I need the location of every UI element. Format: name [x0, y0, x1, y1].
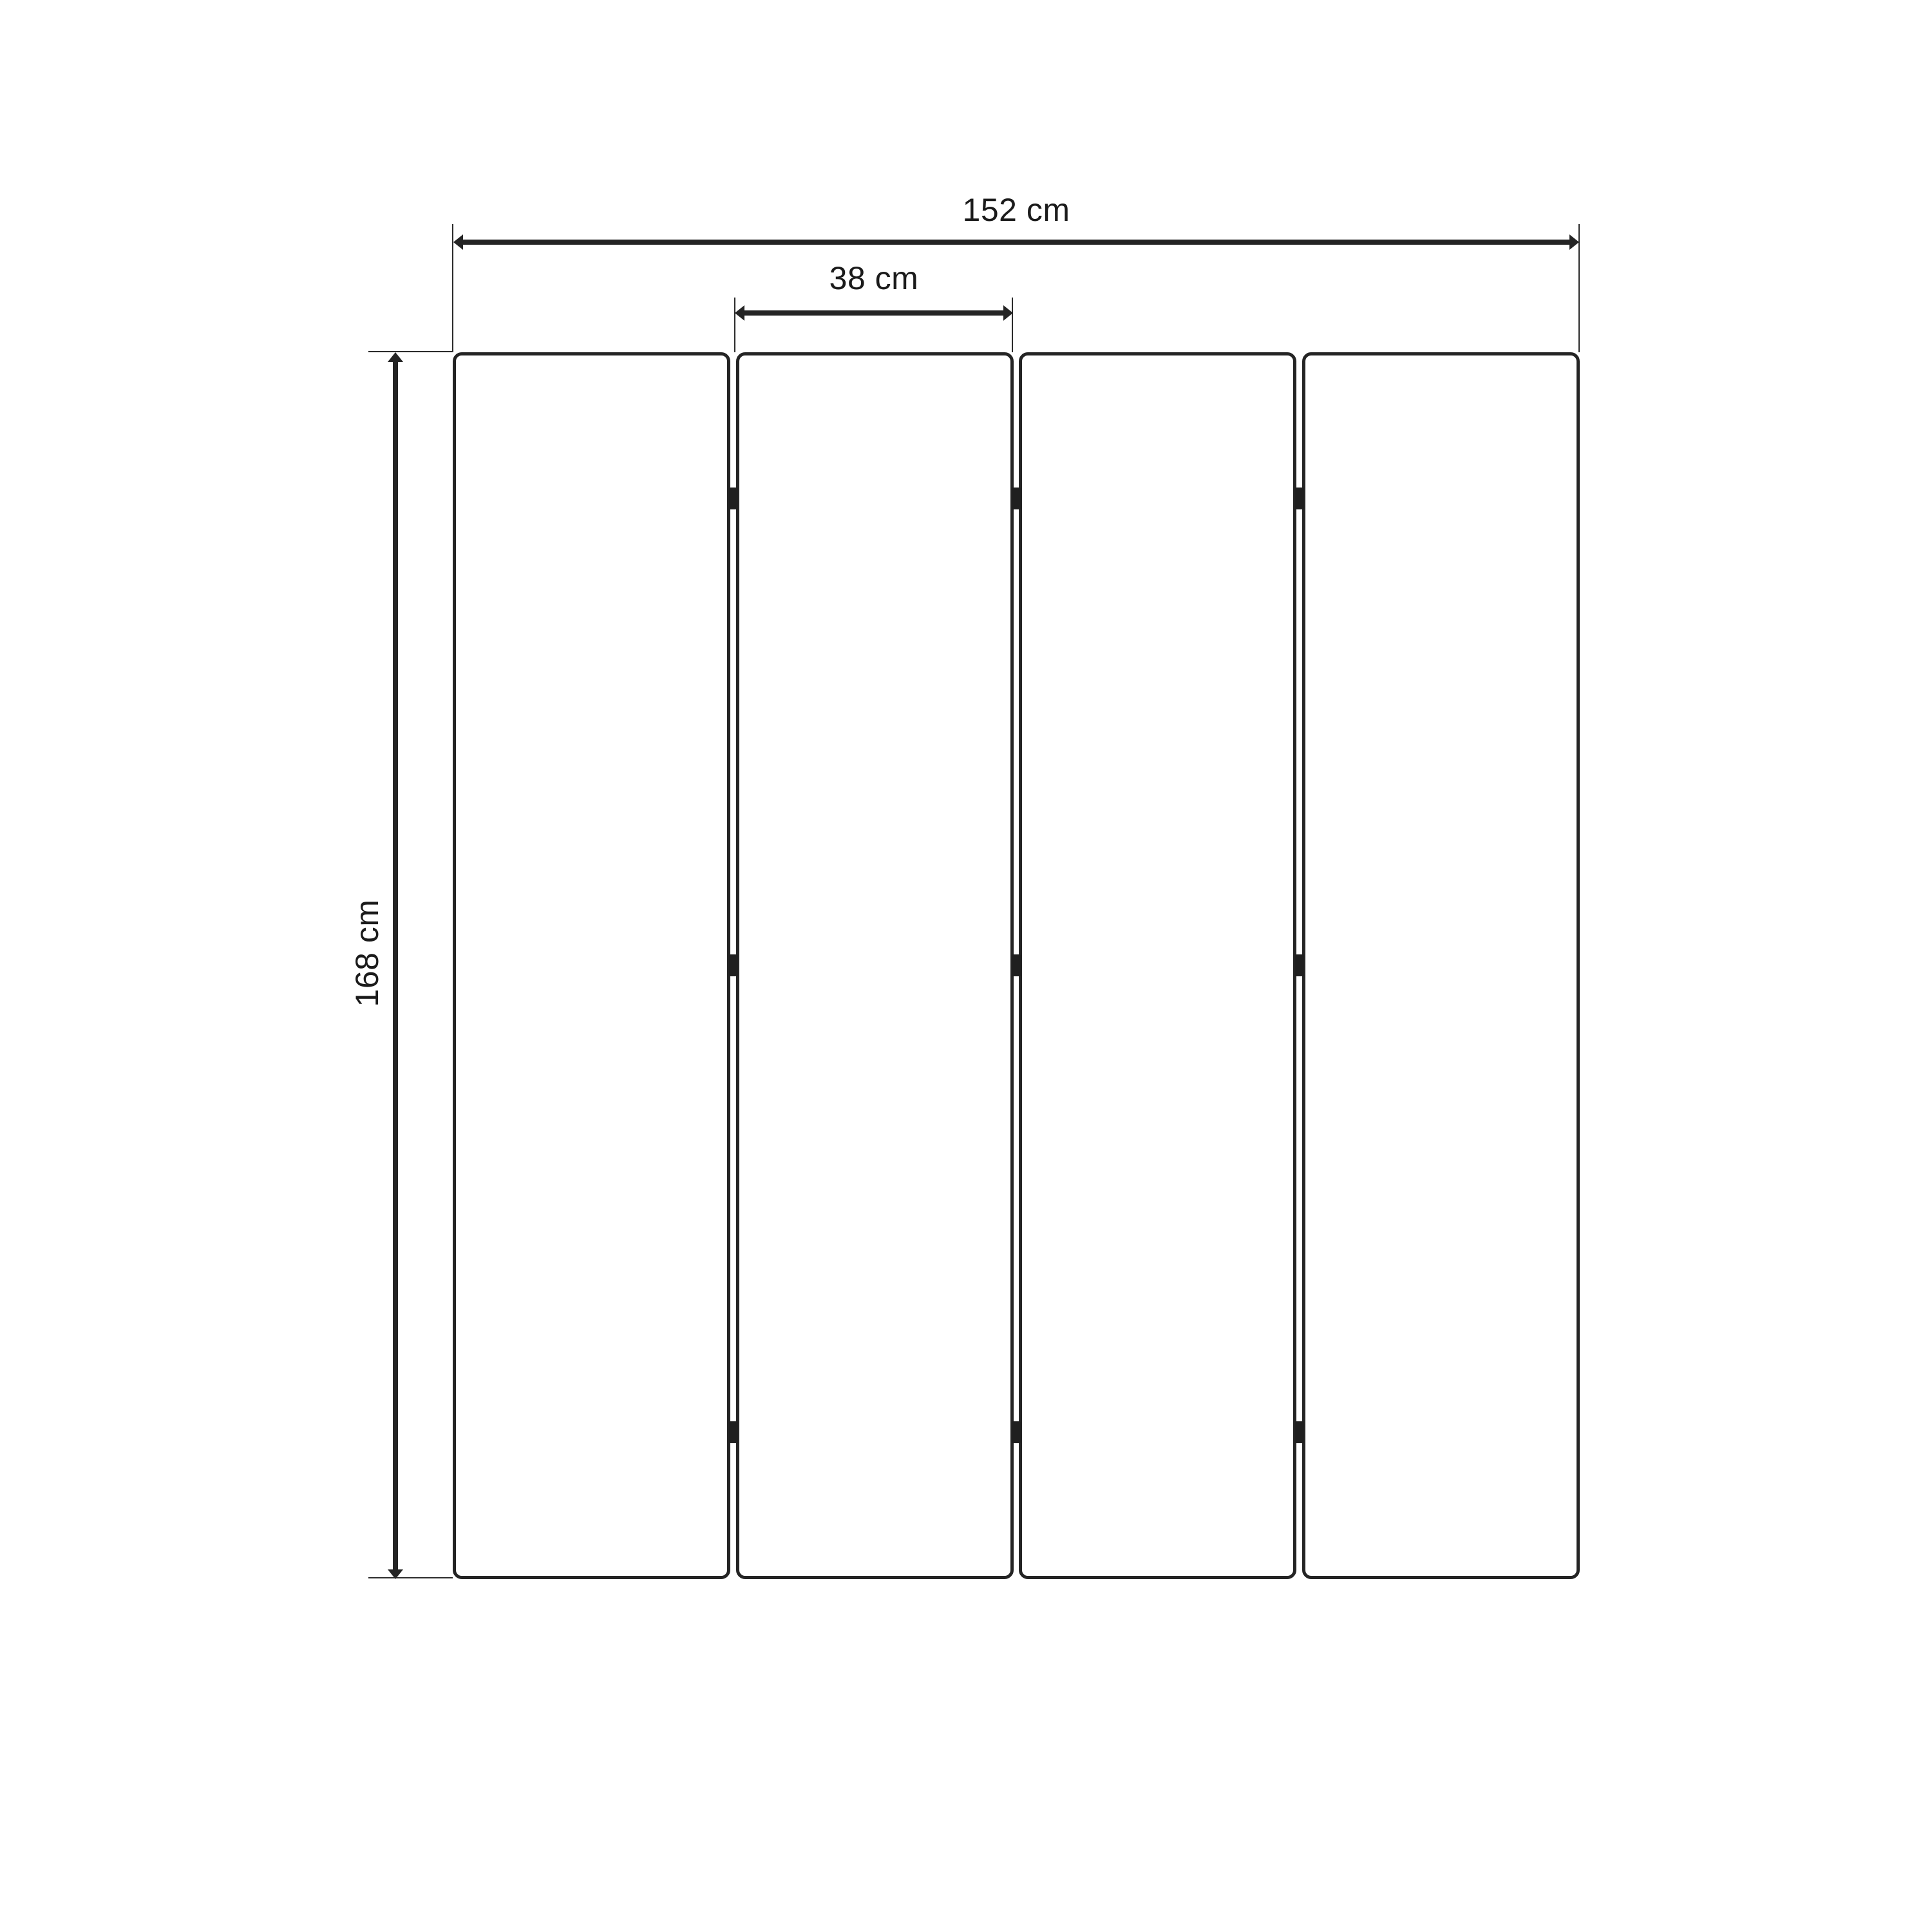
hinge: [729, 1421, 738, 1443]
panel-width-label: 38 cm: [745, 260, 1003, 296]
total-width-label: 152 cm: [887, 192, 1145, 228]
screen-panel-3: [1019, 352, 1296, 1579]
arrow-right-icon: [1569, 234, 1579, 250]
dimension-line: [393, 362, 398, 1569]
arrow-left-icon: [735, 305, 744, 321]
hinge: [1295, 1421, 1304, 1443]
extension-line-top: [368, 351, 453, 352]
arrow-up-icon: [388, 352, 403, 362]
hinge: [1012, 954, 1021, 976]
hinge: [1295, 488, 1304, 509]
screen-panel-4: [1302, 352, 1580, 1579]
hinge: [1295, 954, 1304, 976]
height-label: 168 cm: [349, 824, 385, 1082]
arrow-right-icon: [1003, 305, 1013, 321]
technical-drawing-canvas: 152 cm 38 cm 168 cm: [0, 0, 1932, 1932]
screen-panel-2: [736, 352, 1014, 1579]
hinge: [1012, 1421, 1021, 1443]
extension-line-bottom: [368, 1577, 453, 1578]
arrow-left-icon: [453, 234, 463, 250]
dimension-line: [743, 310, 1005, 316]
dimension-line: [460, 240, 1570, 245]
hinge: [729, 488, 738, 509]
screen-panel-1: [453, 352, 730, 1579]
arrow-down-icon: [388, 1569, 403, 1579]
hinge: [729, 954, 738, 976]
hinge: [1012, 488, 1021, 509]
